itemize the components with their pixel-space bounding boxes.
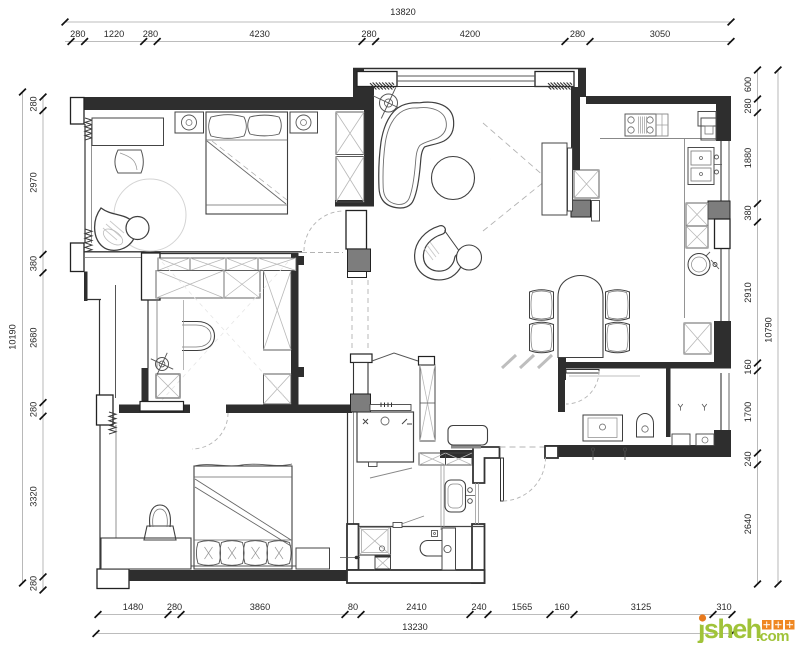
svg-text:280: 280 — [167, 602, 182, 612]
svg-text:280: 280 — [29, 402, 39, 417]
svg-text:280: 280 — [361, 29, 376, 39]
svg-text:10190: 10190 — [8, 324, 18, 350]
svg-text:310: 310 — [716, 602, 731, 612]
svg-text:1565: 1565 — [512, 602, 532, 612]
svg-text:380: 380 — [743, 205, 753, 220]
svg-text:280: 280 — [70, 29, 85, 39]
svg-text:.com: .com — [756, 628, 789, 643]
svg-text:1480: 1480 — [123, 602, 143, 612]
svg-text:2410: 2410 — [406, 602, 426, 612]
svg-text:600: 600 — [743, 77, 753, 92]
svg-text:3320: 3320 — [29, 486, 39, 506]
svg-text:1220: 1220 — [104, 29, 124, 39]
svg-text:3860: 3860 — [250, 602, 270, 612]
svg-text:1880: 1880 — [743, 148, 753, 168]
svg-text:280: 280 — [143, 29, 158, 39]
svg-text:240: 240 — [471, 602, 486, 612]
svg-text:280: 280 — [29, 576, 39, 591]
svg-text:3050: 3050 — [650, 29, 670, 39]
svg-text:280: 280 — [570, 29, 585, 39]
svg-text:280: 280 — [29, 96, 39, 111]
svg-text:10790: 10790 — [764, 317, 774, 343]
svg-text:1700: 1700 — [743, 402, 753, 422]
svg-text:2970: 2970 — [29, 172, 39, 192]
svg-text:160: 160 — [743, 359, 753, 374]
svg-text:13820: 13820 — [390, 7, 416, 17]
svg-text:4200: 4200 — [460, 29, 480, 39]
svg-text:240: 240 — [743, 451, 753, 466]
svg-text:160: 160 — [554, 602, 569, 612]
svg-text:2680: 2680 — [29, 327, 39, 347]
svg-text:3125: 3125 — [631, 602, 651, 612]
svg-text:2640: 2640 — [743, 514, 753, 534]
svg-text:80: 80 — [348, 602, 358, 612]
svg-text:13230: 13230 — [402, 622, 428, 632]
svg-text:2910: 2910 — [743, 282, 753, 302]
svg-text:380: 380 — [29, 256, 39, 271]
svg-text:4230: 4230 — [249, 29, 269, 39]
svg-text:280: 280 — [743, 98, 753, 113]
